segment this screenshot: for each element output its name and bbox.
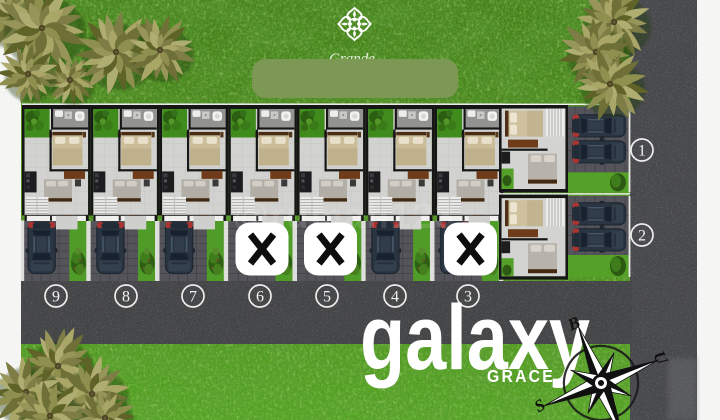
- svg-text:9: 9: [52, 288, 60, 305]
- svg-text:5: 5: [323, 288, 331, 305]
- svg-text:GRACE: GRACE: [487, 366, 555, 386]
- svg-text:6: 6: [256, 288, 264, 305]
- svg-text:2: 2: [638, 227, 646, 244]
- svg-text:8: 8: [122, 288, 130, 305]
- svg-text:1: 1: [638, 142, 646, 159]
- svg-text:galaxy: galaxy: [360, 287, 590, 389]
- svg-text:7: 7: [189, 288, 197, 305]
